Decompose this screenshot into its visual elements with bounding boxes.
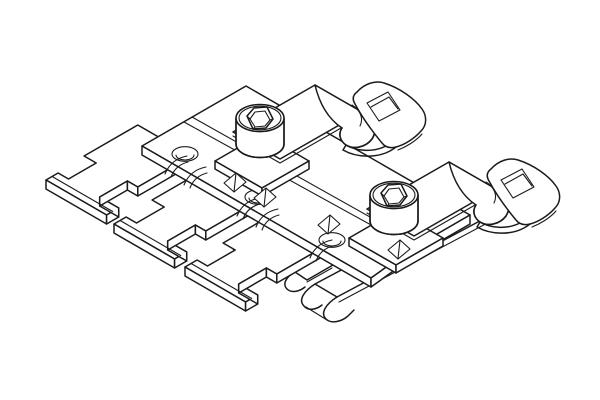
socket-screw-1: [236, 105, 284, 158]
technical-drawing-page: [0, 0, 600, 400]
mounting-hole-1: [172, 147, 198, 162]
socket-screw-2: [370, 182, 418, 235]
technical-drawing: [0, 0, 600, 400]
